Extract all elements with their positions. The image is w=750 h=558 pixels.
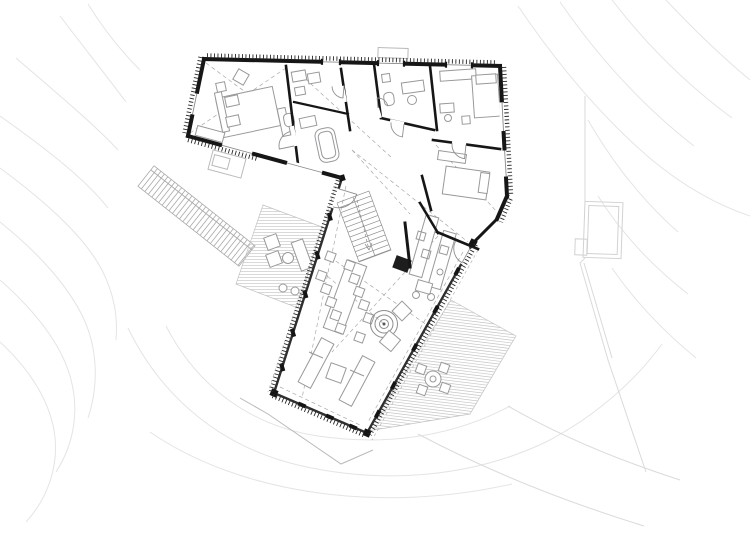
floor-plan-svg [0,0,750,558]
neighbor-building [575,201,623,258]
exterior-stair-ramp [138,166,255,266]
floor-plan-figure [0,0,750,558]
outdoor-lounge-furniture [264,234,313,295]
